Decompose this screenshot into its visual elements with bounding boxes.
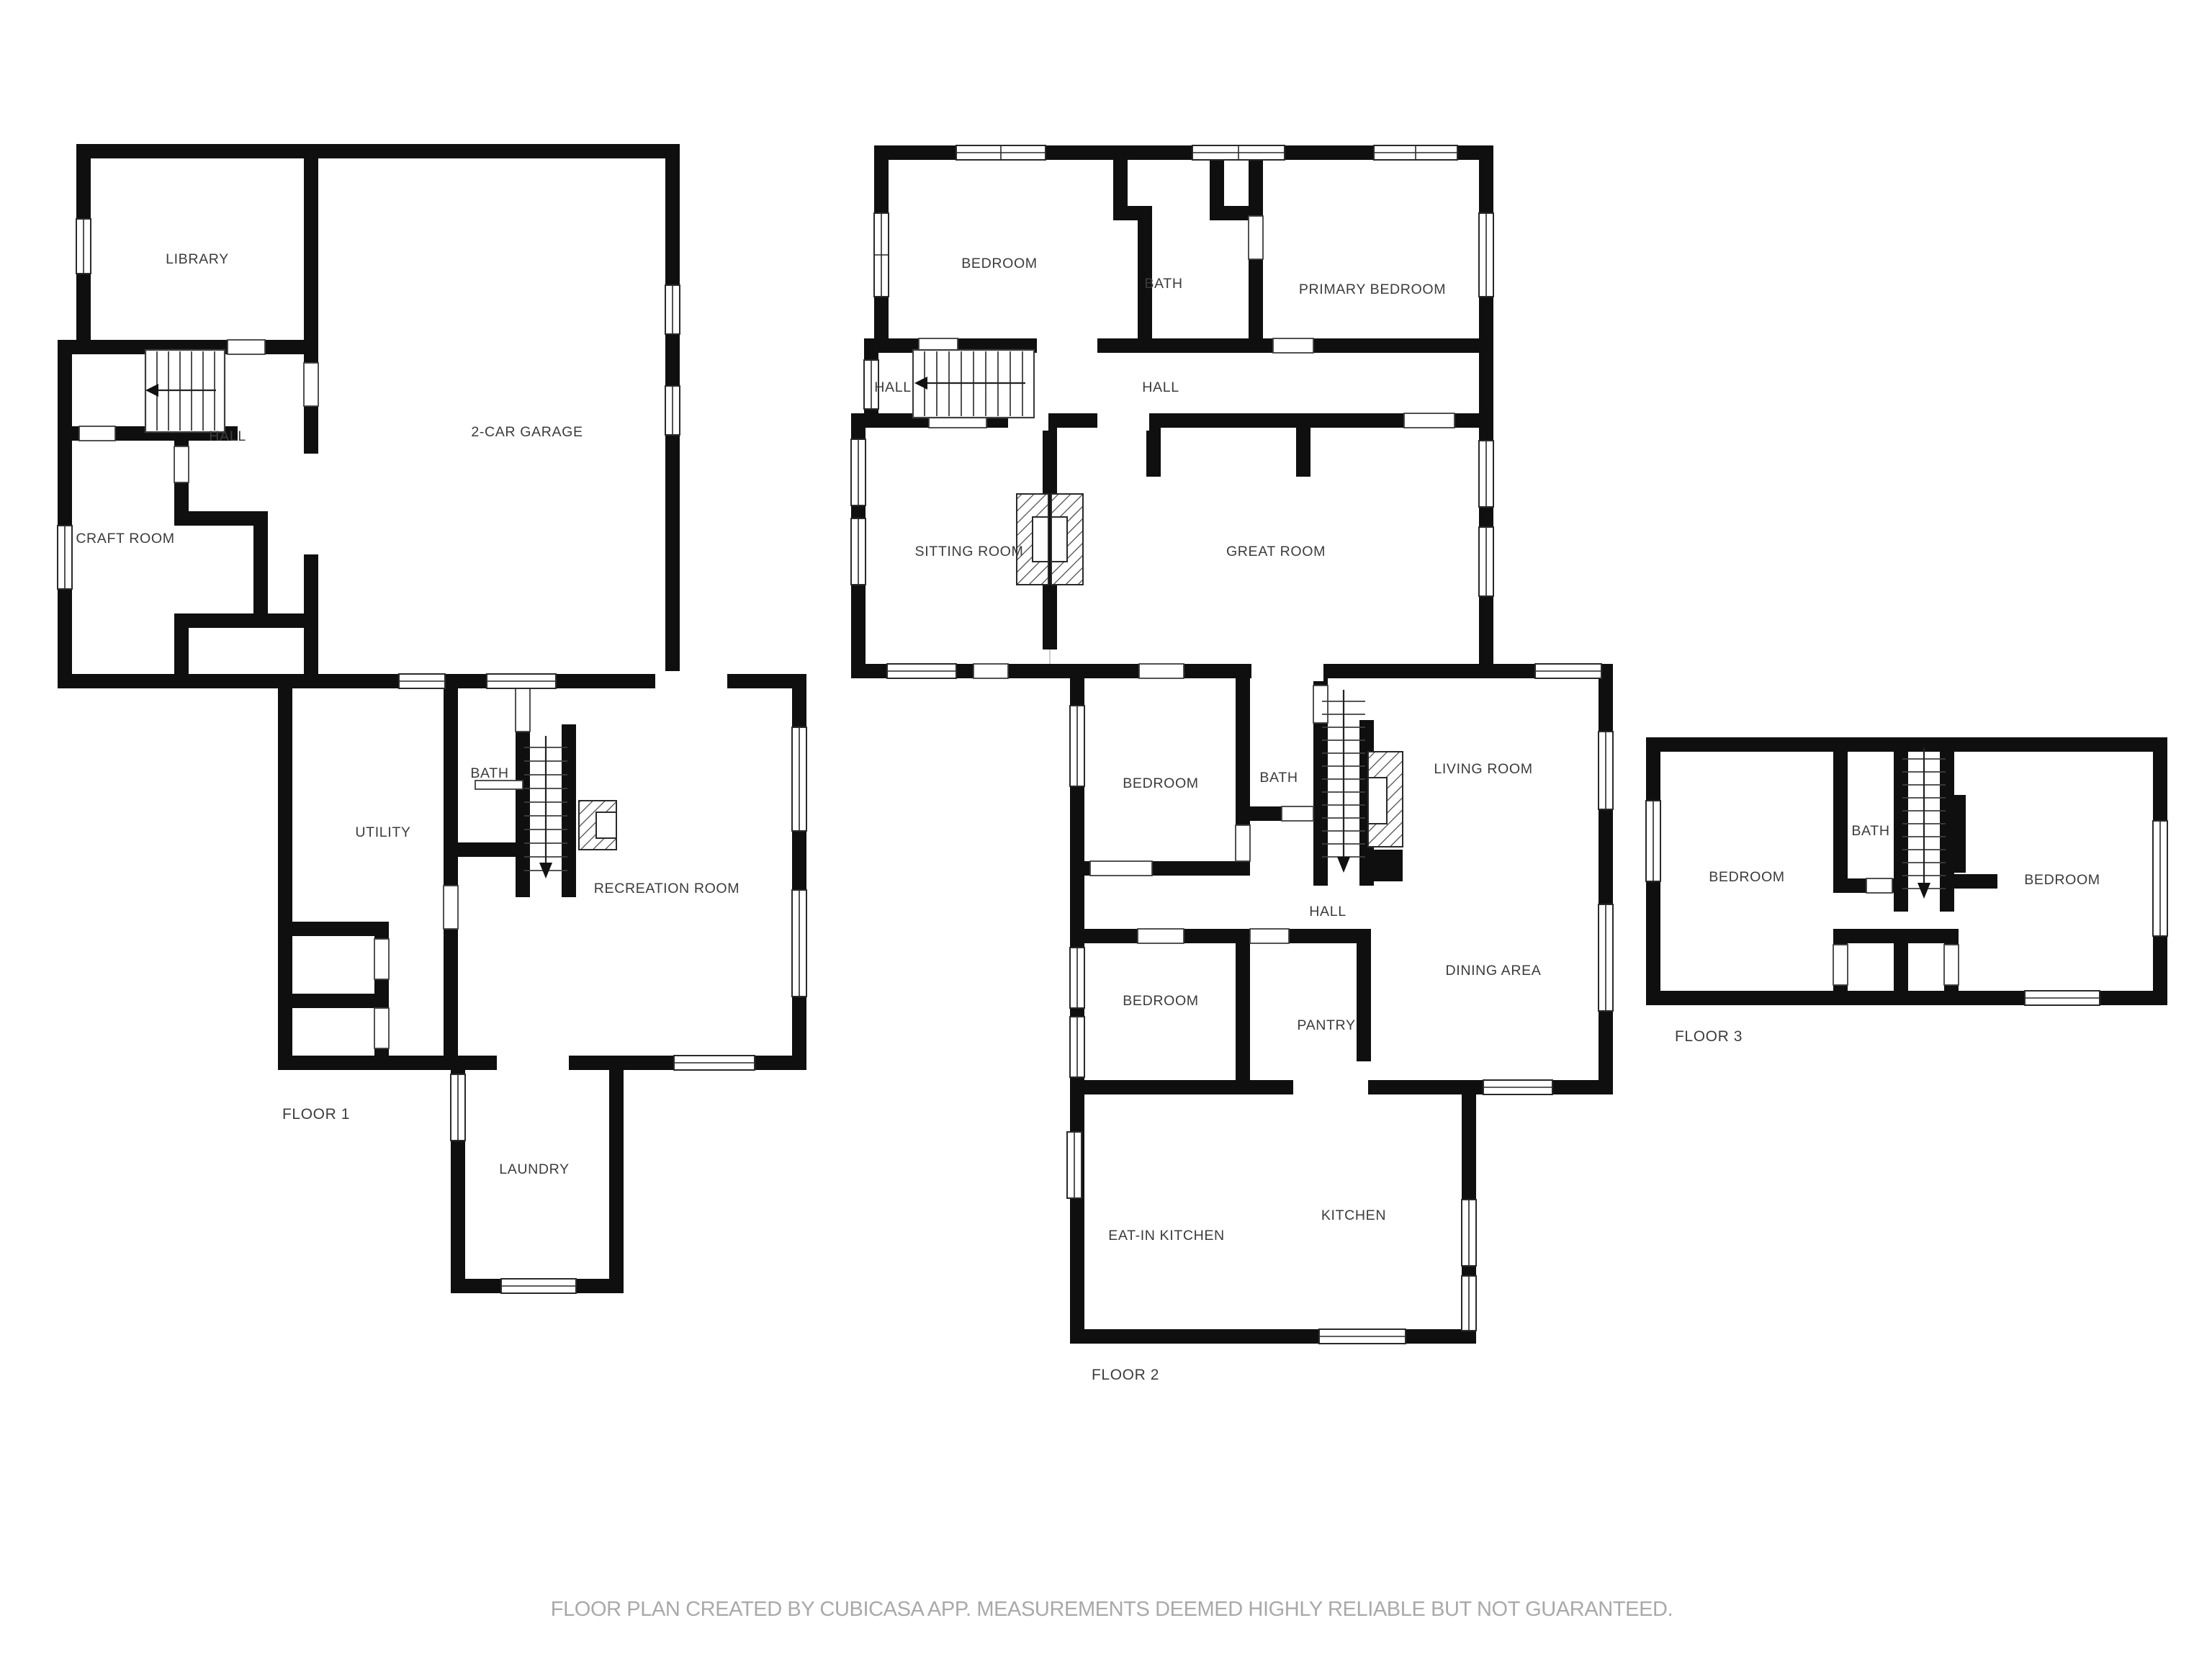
room-label-eat-in-kitchen: EAT-IN KITCHEN [1108,1228,1225,1244]
window-icon [1535,664,1601,678]
room-label-living-room: LIVING ROOM [1434,761,1532,777]
window-icon [58,526,72,589]
room-label-garage: 2-CAR GARAGE [471,424,583,440]
stairs-icon [524,736,567,878]
window-icon [1192,145,1285,160]
stairs-icon [1322,690,1365,873]
window-icon [665,386,680,435]
room-label-laundry: LAUNDRY [499,1161,569,1177]
window-icon [665,285,680,334]
window-icon [1462,1200,1476,1266]
window-icon [851,518,866,585]
window-icon [851,439,866,505]
floor-2-title: FLOOR 2 [1092,1367,1159,1383]
window-icon [1070,948,1084,1008]
window-icon [1483,1080,1552,1094]
window-icon [674,1056,755,1070]
floor-3: BEDROOM BATH BEDROOM FLOOR 3 [1646,745,2167,1045]
floor-1-title: FLOOR 1 [282,1106,350,1123]
room-label-utility: UTILITY [355,824,410,840]
room-label-library: LIBRARY [166,251,229,267]
room-label-kitchen: KITCHEN [1321,1208,1386,1223]
window-icon [1462,1276,1476,1331]
window-icon [956,145,1046,160]
room-label-hall-f2-a: HALL [874,379,911,395]
room-label-dining-area: DINING AREA [1446,963,1542,979]
room-label-bedroom-f2-c: BEDROOM [1123,993,1198,1009]
room-label-recreation-room: RECREATION ROOM [594,881,739,896]
window-icon [792,890,806,997]
window-icon [1599,732,1613,809]
window-icon [1479,527,1493,596]
room-label-hall-f1: HALL [209,428,246,444]
window-icon [1319,1329,1406,1344]
window-icon [1646,801,1660,881]
floor-1: LIBRARY 2-CAR GARAGE HALL CRAFT ROOM BAT… [58,151,806,1293]
room-label-bath-f1: BATH [470,765,508,781]
fireplace-icon [579,801,616,850]
stairs-icon [145,350,225,432]
window-icon [501,1279,576,1293]
room-label-hall-f2-c: HALL [1309,904,1346,920]
floor-2-windows [851,145,1613,1344]
stairs-icon [1902,747,1946,899]
room-label-bedroom-f3-b: BEDROOM [2024,872,2100,888]
window-icon [1479,213,1493,297]
window-icon [1070,706,1084,786]
floor-2: BEDROOM BATH PRIMARY BEDROOM HALL HALL S… [851,145,1613,1383]
window-icon [2025,991,2100,1005]
window-icon [1599,904,1613,1011]
stairs-icon [913,350,1034,418]
window-icon [1067,1132,1082,1198]
floor-plan-canvas: LIBRARY 2-CAR GARAGE HALL CRAFT ROOM BAT… [0,0,2212,1659]
window-icon [874,213,889,297]
floor-1-walls [65,151,799,1286]
caption: FLOOR PLAN CREATED BY CUBICASA APP. MEAS… [551,1598,1673,1621]
room-label-bath-f2-a: BATH [1144,276,1182,292]
window-icon [1070,1017,1084,1077]
room-label-pantry: PANTRY [1297,1017,1355,1033]
floor-1-door-openings [79,340,727,1073]
room-label-craft-room: CRAFT ROOM [76,531,174,547]
floor-2-walls [858,153,1606,1336]
window-icon [887,664,956,678]
fireplace-icon [1368,752,1403,881]
room-label-bedroom-f2-b: BEDROOM [1123,775,1198,791]
room-label-great-room: GREAT ROOM [1226,544,1326,559]
room-label-bath-f3: BATH [1851,823,1889,839]
window-icon [451,1074,465,1141]
window-icon [399,674,445,688]
room-label-bath-f2-b: BATH [1259,770,1298,786]
room-label-sitting-room: SITTING ROOM [915,544,1024,559]
window-icon [76,219,91,274]
window-icon [792,727,806,831]
window-icon [2153,821,2167,936]
room-label-bedroom-f2-a: BEDROOM [961,256,1037,271]
window-icon [1479,441,1493,507]
chimney-block [1947,795,1966,873]
room-label-bedroom-f3-a: BEDROOM [1709,869,1784,885]
room-label-primary-bedroom: PRIMARY BEDROOM [1299,282,1446,297]
room-label-hall-f2-b: HALL [1142,379,1179,395]
window-icon [1374,145,1457,160]
floor-3-title: FLOOR 3 [1675,1028,1743,1045]
window-icon [487,674,556,688]
